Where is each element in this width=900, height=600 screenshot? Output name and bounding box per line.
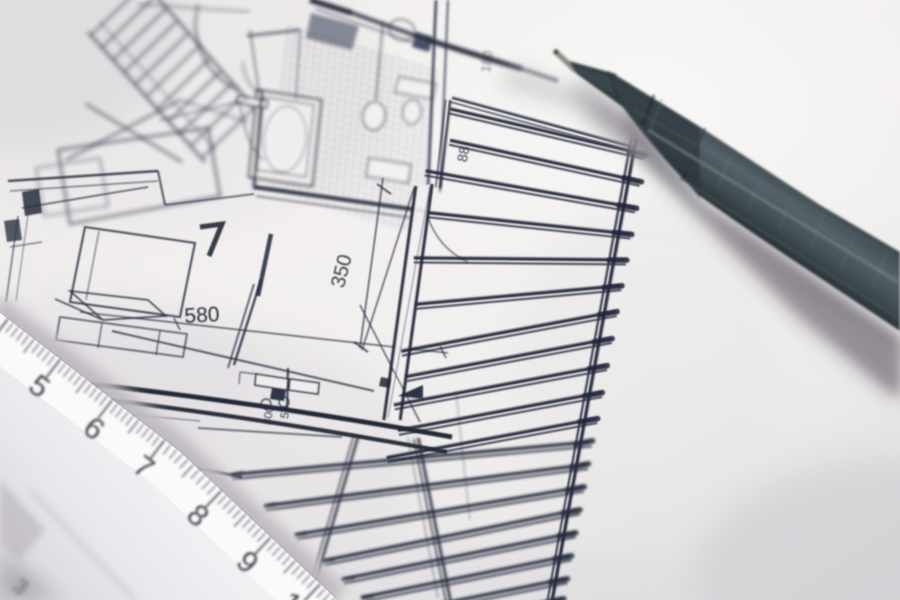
svg-text:180: 180 — [478, 50, 495, 73]
